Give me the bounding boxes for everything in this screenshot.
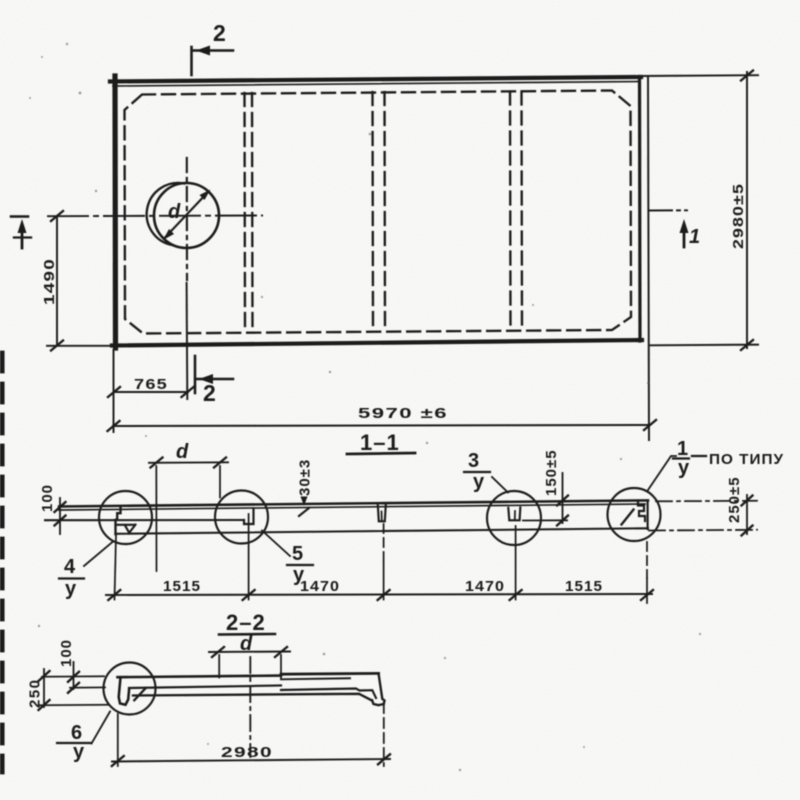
svg-text:5: 5 — [292, 543, 303, 565]
svg-text:30±3: 30±3 — [297, 459, 314, 496]
svg-text:2980±5: 2980±5 — [730, 183, 747, 249]
svg-text:1: 1 — [689, 226, 700, 248]
svg-text:d: d — [176, 441, 189, 463]
svg-text:у: у — [65, 578, 77, 600]
svg-text:у: у — [73, 741, 85, 763]
svg-text:3: 3 — [468, 450, 479, 472]
svg-text:ПО ТИПУ: ПО ТИПУ — [709, 451, 784, 468]
svg-text:2–2: 2–2 — [226, 610, 266, 635]
svg-text:250: 250 — [27, 678, 44, 708]
svg-text:2: 2 — [213, 20, 226, 46]
svg-text:100: 100 — [39, 484, 56, 512]
svg-text:1–1: 1–1 — [360, 430, 400, 455]
svg-text:4: 4 — [64, 556, 76, 578]
svg-text:100: 100 — [58, 639, 75, 667]
svg-text:1470: 1470 — [465, 578, 505, 595]
svg-text:765: 765 — [134, 376, 168, 393]
svg-text:250±5: 250±5 — [726, 476, 743, 523]
svg-text:1490: 1490 — [41, 258, 58, 305]
svg-text:у: у — [473, 471, 485, 493]
svg-text:у: у — [678, 457, 690, 479]
svg-text:2980: 2980 — [221, 744, 273, 761]
svg-text:d: d — [168, 201, 181, 223]
svg-text:1470: 1470 — [300, 578, 340, 595]
svg-text:2: 2 — [203, 380, 216, 406]
svg-text:1515: 1515 — [565, 578, 603, 595]
svg-text:1515: 1515 — [163, 578, 201, 595]
svg-text:150±5: 150±5 — [543, 449, 560, 496]
svg-text:5970 ±6: 5970 ±6 — [358, 405, 448, 422]
